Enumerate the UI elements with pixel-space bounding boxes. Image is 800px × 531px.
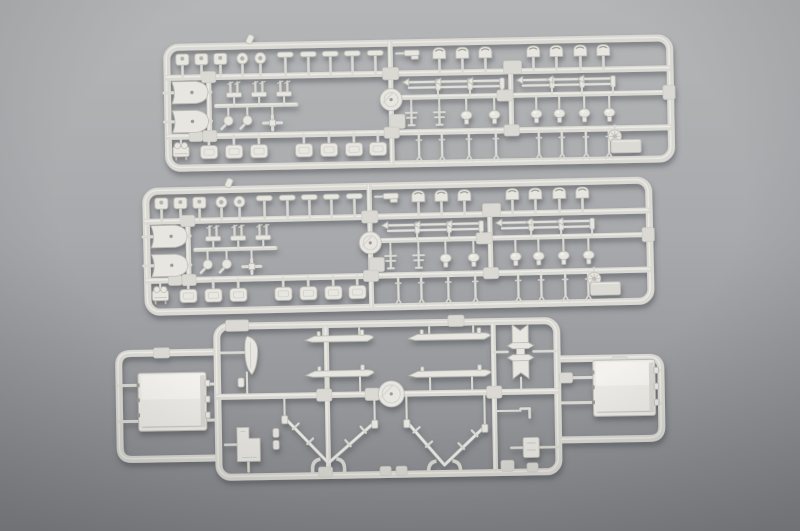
sprues-photo (0, 0, 800, 531)
vignette-overlay (0, 0, 800, 531)
photo-canvas (0, 0, 800, 531)
